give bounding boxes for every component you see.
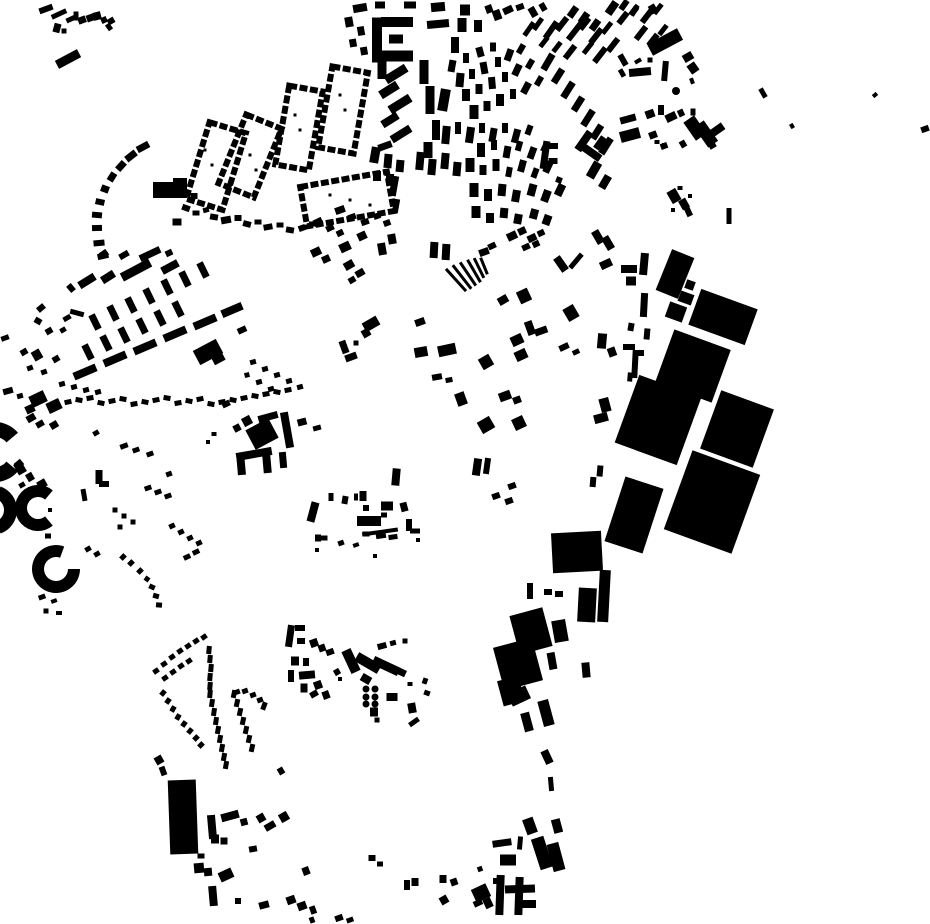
building-footprint <box>454 391 468 407</box>
building-footprint <box>618 68 626 77</box>
building-footprint <box>475 46 484 57</box>
building-footprint <box>75 397 83 403</box>
building-footprint <box>502 72 508 82</box>
building-footprint <box>192 548 200 555</box>
building-footprint <box>122 514 127 519</box>
building-footprint <box>118 250 130 260</box>
building-footprint <box>511 415 527 431</box>
building-footprint <box>682 51 695 63</box>
building-footprint <box>220 302 243 318</box>
building-footprint <box>616 11 629 26</box>
building-footprint <box>522 900 536 908</box>
building-footprint <box>758 87 767 98</box>
building-footprint <box>132 446 140 453</box>
building-footprint <box>171 300 184 317</box>
building-footprint <box>566 20 584 41</box>
building-footprint <box>25 413 36 424</box>
building-footprint <box>551 818 563 834</box>
building-footprint <box>581 662 590 678</box>
building-footprint <box>249 845 258 852</box>
building-footprint <box>354 268 365 279</box>
building-footprint <box>451 37 459 53</box>
building-footprint <box>321 690 330 700</box>
building-footprint <box>671 208 675 212</box>
building-footprint <box>329 194 332 197</box>
building-footprint <box>381 502 393 511</box>
building-footprint <box>49 420 59 430</box>
building-footprint <box>169 705 176 713</box>
building-footprint <box>94 389 101 395</box>
building-footprint <box>493 159 500 171</box>
building-footprint <box>180 720 188 728</box>
building-footprint <box>466 158 475 172</box>
building-footprint <box>161 674 169 682</box>
building-footprint <box>58 381 65 387</box>
building-footprint <box>192 637 200 645</box>
building-footprint <box>548 777 554 791</box>
building-footprint <box>66 283 76 293</box>
building-footprint <box>567 5 580 19</box>
building-footprint <box>77 273 97 289</box>
building-footprint <box>249 692 256 699</box>
building-footprint <box>455 73 464 88</box>
building-footprint <box>388 534 398 540</box>
building-footprint <box>412 878 419 886</box>
building-footprint <box>16 393 23 399</box>
building-footprint <box>503 145 512 158</box>
building-footprint <box>352 3 367 13</box>
building-footprint <box>462 89 470 101</box>
building-footprint <box>347 276 356 285</box>
building-footprint <box>100 270 116 284</box>
building-footprint <box>258 900 269 909</box>
building-footprint <box>634 58 642 65</box>
building-footprint <box>329 493 334 501</box>
building-footprint <box>153 309 166 326</box>
building-footprint <box>505 167 513 178</box>
building-footprint <box>192 734 200 742</box>
building-footprint <box>321 536 328 541</box>
building-footprint <box>553 255 569 273</box>
building-footprint <box>686 61 699 74</box>
building-footprint <box>582 41 595 55</box>
building-footprint <box>99 481 109 487</box>
building-footprint <box>152 397 160 403</box>
building-footprint <box>370 708 378 717</box>
building-footprint <box>377 862 383 867</box>
building-footprint <box>153 182 175 198</box>
building-footprint <box>591 229 605 245</box>
building-footprint <box>124 150 138 163</box>
building-footprint <box>510 89 516 99</box>
building-footprint <box>527 583 533 599</box>
building-footprint <box>285 378 292 384</box>
building-footprint <box>540 189 552 203</box>
building-footprint <box>84 545 92 552</box>
building-footprint <box>540 52 555 71</box>
building-footprint <box>377 242 387 255</box>
building-footprint <box>491 492 501 500</box>
building-footprint <box>208 664 214 672</box>
building-footprint <box>527 183 538 197</box>
building-footprint <box>240 717 247 726</box>
building-footprint <box>656 249 695 299</box>
building-footprint <box>507 482 517 490</box>
building-footprint <box>77 15 87 24</box>
building-footprint <box>260 701 267 710</box>
building-footprint <box>647 28 683 55</box>
building-footprint <box>237 325 248 334</box>
building-footprint <box>243 726 250 735</box>
round-building <box>363 694 370 701</box>
building-footprint <box>97 400 105 406</box>
building-footprint <box>389 640 396 646</box>
building-footprint <box>497 294 510 306</box>
building-footprint <box>404 2 416 9</box>
building-footprint <box>93 240 104 247</box>
building-footprint <box>284 387 292 393</box>
building-footprint <box>38 593 46 600</box>
building-footprint <box>524 320 536 336</box>
building-footprint <box>551 619 569 643</box>
building-footprint <box>661 61 669 81</box>
building-footprint <box>479 123 485 133</box>
building-footprint <box>288 670 294 682</box>
round-building <box>672 87 680 95</box>
building-footprint <box>211 835 219 844</box>
building-footprint <box>387 233 397 244</box>
crescent-building <box>15 485 53 531</box>
building-footprint <box>648 58 653 63</box>
building-footprint <box>81 343 94 360</box>
building-footprint <box>496 94 504 106</box>
building-footprint <box>460 5 470 16</box>
building-footprint <box>357 26 365 36</box>
round-building <box>372 694 379 701</box>
building-footprint <box>255 169 258 172</box>
building-footprint <box>568 252 583 269</box>
building-footprint <box>597 465 604 476</box>
building-footprint <box>19 348 28 357</box>
building-footprint <box>617 53 628 66</box>
building-footprint <box>430 242 439 258</box>
building-footprint <box>634 25 649 41</box>
building-footprint <box>119 553 127 561</box>
building-footprint <box>689 77 695 84</box>
building-footprint <box>136 141 151 153</box>
building-footprint <box>315 548 319 552</box>
building-footprint <box>92 225 102 231</box>
building-footprint <box>414 317 426 327</box>
building-footprint <box>99 334 112 351</box>
building-footprint <box>554 183 566 197</box>
crescent-building <box>0 422 18 482</box>
building-footprint <box>555 176 563 184</box>
building-footprint <box>549 158 558 164</box>
building-footprint <box>491 140 497 150</box>
building-footprint <box>25 472 35 482</box>
building-footprint <box>920 125 930 133</box>
building-footprint <box>390 125 413 143</box>
building-footprint <box>108 398 116 404</box>
building-footprint <box>232 423 241 432</box>
building-footprint <box>280 412 294 449</box>
building-footprint <box>113 508 118 513</box>
building-footprint <box>538 2 547 12</box>
building-footprint <box>141 399 149 405</box>
building-footprint <box>211 164 214 167</box>
building-footprint <box>517 836 523 849</box>
building-footprint <box>349 199 352 202</box>
building-footprint <box>142 287 155 304</box>
crescent-building <box>0 487 17 534</box>
building-footprint <box>206 440 210 444</box>
building-footprint <box>360 673 373 685</box>
building-footprint <box>498 390 512 403</box>
building-footprint <box>148 583 156 590</box>
building-footprint <box>338 241 352 254</box>
building-footprint <box>375 718 380 723</box>
building-footprint <box>352 542 359 548</box>
building-footprint <box>534 325 549 336</box>
building-footprint <box>527 146 538 160</box>
building-footprint <box>458 18 467 32</box>
building-footprint <box>192 314 217 331</box>
building-footprint <box>168 780 199 855</box>
building-footprint <box>551 67 565 84</box>
building-footprint <box>437 343 457 358</box>
building-footprint <box>577 588 597 623</box>
building-footprint <box>33 317 42 326</box>
building-footprint <box>115 160 127 172</box>
building-footprint <box>279 452 287 469</box>
building-footprint <box>86 395 94 401</box>
building-footprint <box>472 206 481 218</box>
building-footprint <box>310 246 322 257</box>
building-footprint <box>207 682 213 690</box>
building-footprint <box>502 123 508 133</box>
building-footprint <box>64 399 72 405</box>
building-footprint <box>369 204 372 207</box>
building-footprint <box>387 94 412 114</box>
building-footprint <box>244 372 250 378</box>
building-footprint <box>644 328 651 339</box>
building-footprint <box>427 19 450 29</box>
building-footprint <box>538 36 549 49</box>
building-footprint <box>177 528 185 535</box>
round-building <box>363 686 370 693</box>
building-footprint <box>309 916 316 923</box>
building-footprint <box>872 92 878 98</box>
building-footprint <box>416 538 420 542</box>
building-footprint <box>522 817 538 836</box>
building-footprint <box>414 346 429 358</box>
building-footprint <box>478 247 490 257</box>
building-footprint <box>488 77 496 90</box>
building-footprint <box>455 122 461 134</box>
building-footprint <box>629 67 652 77</box>
building-footprint <box>246 735 253 744</box>
building-footprint <box>307 501 320 522</box>
building-footprint <box>156 602 162 608</box>
building-footprint <box>339 94 342 97</box>
building-footprint <box>424 142 433 158</box>
building-footprint <box>165 471 172 478</box>
building-footprint <box>196 396 204 402</box>
building-footprint <box>107 171 118 182</box>
building-footprint <box>477 866 483 872</box>
building-footprint <box>593 412 609 424</box>
building-footprint <box>207 690 213 698</box>
building-footprint <box>334 914 344 922</box>
building-footprint <box>363 505 369 511</box>
building-footprint <box>590 477 597 487</box>
building-footprint <box>349 38 357 47</box>
round-building <box>372 701 379 708</box>
building-footprint <box>219 744 225 753</box>
building-footprint <box>375 2 385 9</box>
building-footprint <box>273 389 281 395</box>
building-footprint <box>338 677 342 681</box>
building-footprint <box>154 488 162 495</box>
building-footprint <box>55 49 81 69</box>
building-footprint <box>789 123 795 129</box>
building-footprint <box>597 333 607 349</box>
building-footprint <box>514 877 523 915</box>
building-footprint <box>198 854 205 859</box>
building-footprint <box>124 296 137 313</box>
building-footprint <box>169 668 177 676</box>
perimeter-block-outline <box>275 86 322 171</box>
building-footprint <box>383 219 392 227</box>
building-footprint <box>520 81 532 95</box>
building-footprint <box>537 699 554 727</box>
building-footprint <box>44 327 53 336</box>
building-footprint <box>511 189 521 202</box>
building-footprint <box>26 365 33 372</box>
building-footprint <box>677 109 685 118</box>
building-footprint <box>204 149 207 152</box>
building-footprint <box>119 396 127 402</box>
building-footprint <box>598 174 612 190</box>
building-footprint <box>299 129 302 132</box>
building-footprint <box>297 638 305 644</box>
building-footprint <box>381 17 413 27</box>
building-footprint <box>197 741 205 749</box>
building-footprint <box>80 489 87 502</box>
building-footprint <box>62 29 67 34</box>
building-footprint <box>463 53 469 63</box>
building-footprint <box>527 6 538 18</box>
building-footprint <box>163 395 171 401</box>
building-footprint <box>273 372 280 378</box>
building-footprint <box>530 167 539 178</box>
building-footprint <box>360 491 367 501</box>
perimeter-block-outline <box>318 66 368 153</box>
building-footprint <box>309 905 317 915</box>
building-footprint <box>174 400 182 406</box>
building-footprint <box>515 3 525 11</box>
building-footprint <box>644 109 655 120</box>
building-footprint <box>82 387 89 393</box>
building-footprint <box>301 684 308 693</box>
building-footprint <box>221 753 227 762</box>
building-footprint <box>146 450 154 457</box>
building-footprint <box>408 682 413 686</box>
building-footprint <box>176 647 184 655</box>
building-footprint <box>381 513 387 518</box>
building-footprint <box>639 253 649 276</box>
building-footprint <box>45 534 51 539</box>
building-footprint <box>529 208 539 220</box>
building-footprint <box>399 502 408 513</box>
building-footprint <box>127 559 135 567</box>
building-footprint <box>315 535 321 542</box>
building-footprint <box>263 223 273 230</box>
building-footprint <box>383 154 392 169</box>
building-footprint <box>186 534 194 541</box>
crescent-building <box>32 545 80 593</box>
building-footprint <box>295 625 305 631</box>
building-footprint <box>525 58 535 70</box>
building-footprint <box>241 415 253 427</box>
building-footprint <box>193 211 200 216</box>
building-footprint <box>263 820 276 832</box>
building-footprint <box>120 259 152 282</box>
round-building <box>372 686 379 693</box>
building-footprint <box>619 127 641 143</box>
building-footprint <box>415 152 425 171</box>
building-footprint <box>683 205 693 218</box>
building-footprint <box>294 114 297 117</box>
building-footprint <box>235 215 242 221</box>
building-footprint <box>562 304 579 322</box>
building-footprint <box>72 364 97 381</box>
building-footprint <box>627 323 634 332</box>
building-footprint <box>439 895 450 906</box>
building-footprint <box>221 838 228 845</box>
building-footprint <box>440 875 447 883</box>
building-footprint <box>516 43 526 55</box>
building-footprint <box>678 186 683 190</box>
building-footprint <box>472 458 482 476</box>
building-footprint <box>56 611 62 615</box>
building-footprint <box>605 0 620 16</box>
building-footprint <box>117 326 130 343</box>
building-footprint <box>277 223 284 228</box>
building-footprint <box>343 259 356 271</box>
building-footprint <box>452 162 461 177</box>
building-footprint <box>164 697 172 705</box>
building-footprint <box>218 868 235 883</box>
building-footprint <box>664 111 677 123</box>
building-footprint <box>88 313 101 330</box>
building-footprint <box>509 333 524 347</box>
building-footprint <box>194 863 205 874</box>
building-footprint <box>184 642 192 650</box>
building-footprint <box>442 244 451 260</box>
building-footprint <box>381 51 413 62</box>
building-footprint <box>369 855 376 861</box>
building-footprint <box>469 69 475 79</box>
building-footprint <box>50 598 57 604</box>
building-footprint <box>422 677 429 684</box>
building-footprint <box>520 712 534 733</box>
building-footprint <box>391 468 400 486</box>
building-footprint <box>154 755 165 766</box>
building-footprint <box>563 44 578 60</box>
building-footprint <box>465 127 475 144</box>
